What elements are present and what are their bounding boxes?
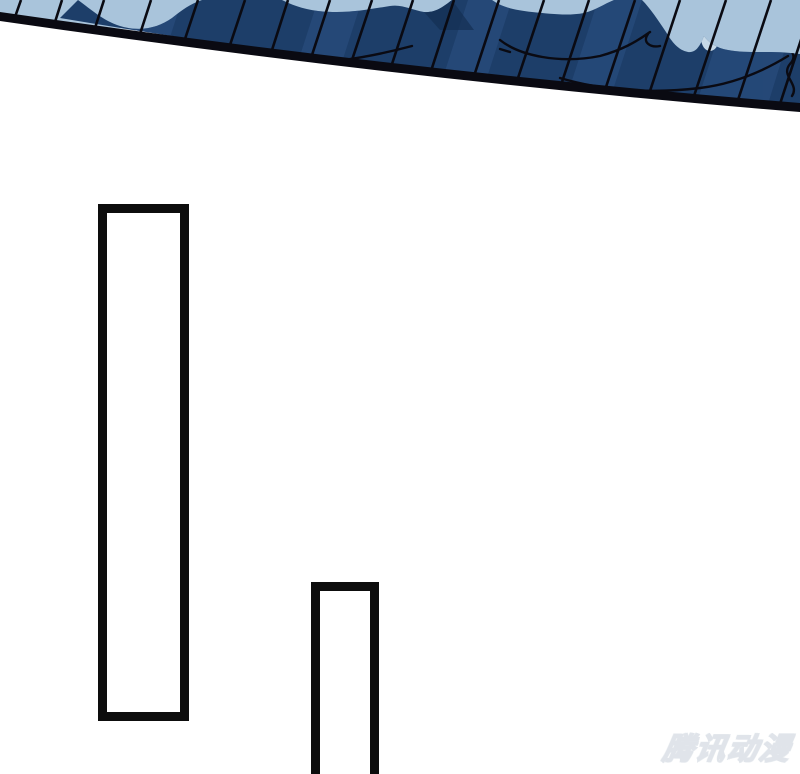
tencent-comics-watermark: 腾讯动漫 (660, 724, 796, 768)
caption-frame-short (311, 582, 379, 774)
caption-frame-tall (98, 204, 189, 721)
caption-text (107, 213, 180, 712)
caption-text (320, 591, 370, 774)
comic-panel: 腾讯动漫 (0, 0, 800, 774)
roof-eave-artwork (0, 0, 800, 130)
